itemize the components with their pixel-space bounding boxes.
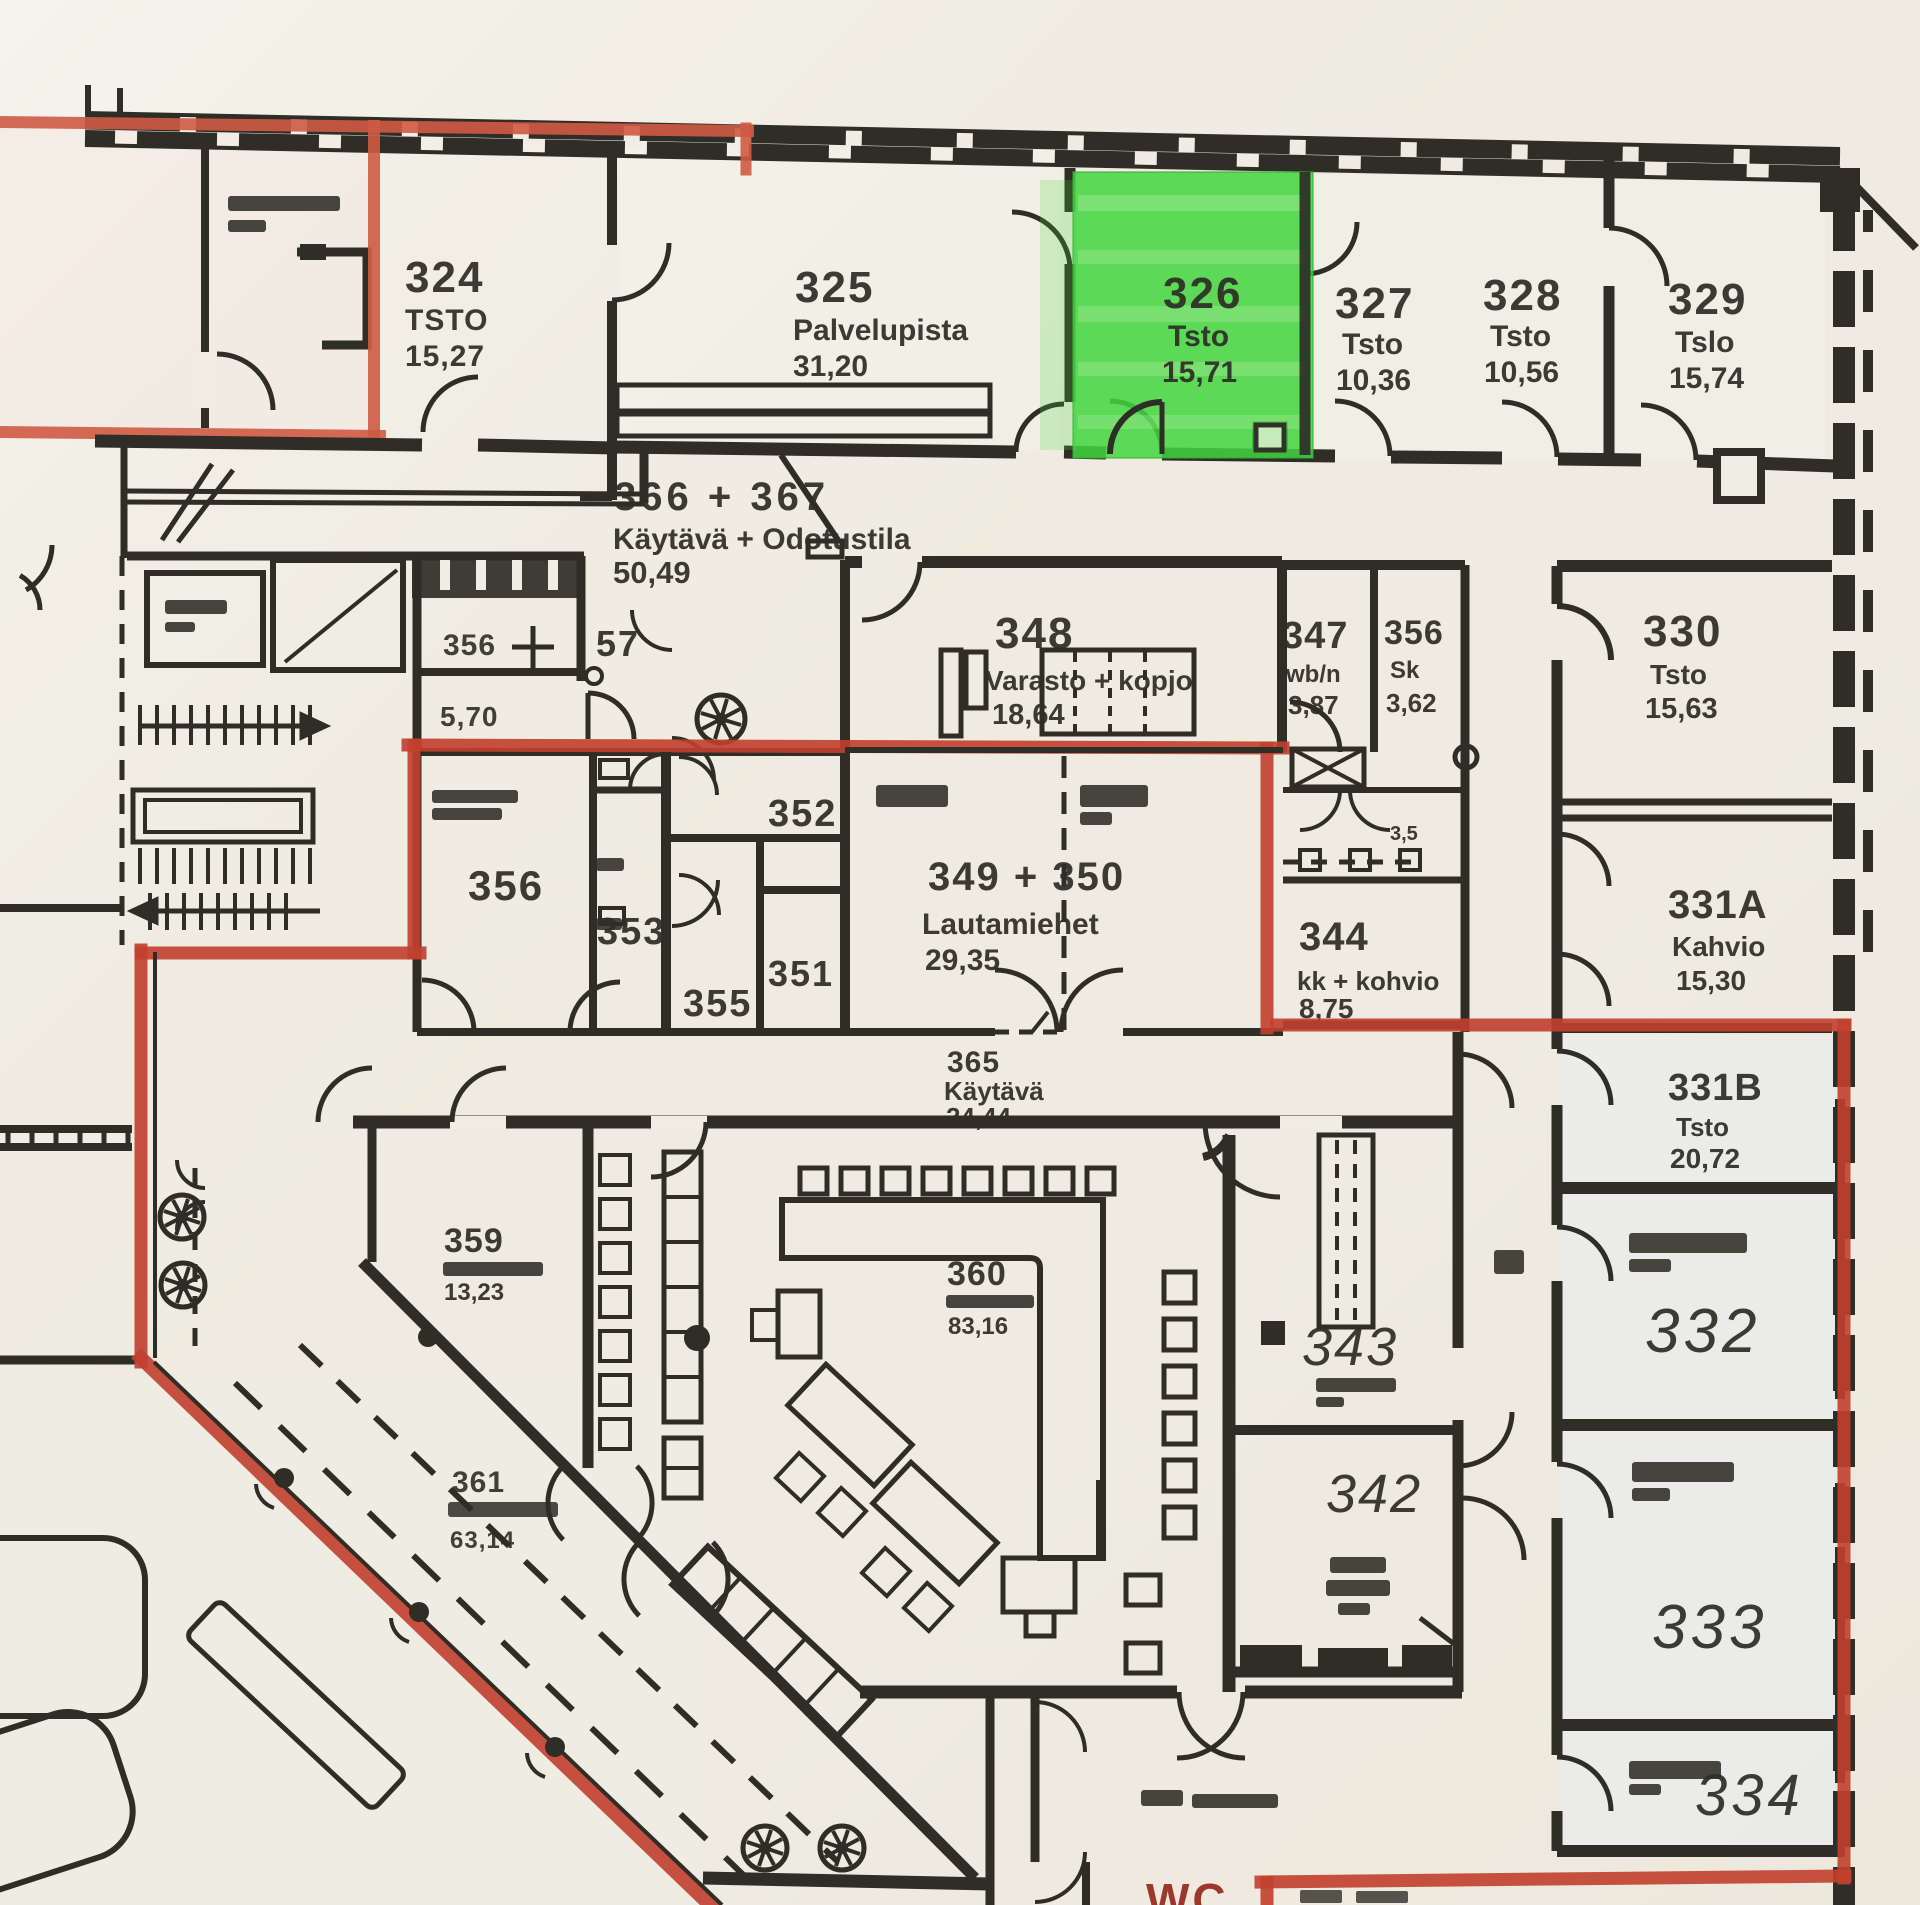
svg-text:3,62: 3,62 [1386, 688, 1437, 718]
svg-text:Kahvio: Kahvio [1672, 931, 1765, 962]
svg-text:15,30: 15,30 [1676, 965, 1746, 996]
svg-text:57: 57 [596, 623, 640, 664]
svg-text:10,56: 10,56 [1484, 356, 1559, 389]
svg-text:359: 359 [444, 1222, 504, 1260]
svg-text:327: 327 [1335, 279, 1414, 328]
svg-text:83,16: 83,16 [948, 1313, 1008, 1340]
svg-text:356: 356 [443, 629, 496, 662]
svg-text:13,23: 13,23 [444, 1279, 504, 1306]
svg-text:356: 356 [1384, 614, 1444, 652]
svg-text:330: 330 [1643, 607, 1722, 656]
svg-text:WC: WC [1146, 1874, 1229, 1905]
svg-text:334: 334 [1695, 1763, 1804, 1828]
svg-text:348: 348 [995, 609, 1074, 658]
svg-text:kk + kohvio: kk + kohvio [1297, 966, 1439, 996]
svg-text:342: 342 [1326, 1464, 1422, 1524]
svg-text:TSTO: TSTO [405, 304, 488, 337]
svg-text:343: 343 [1302, 1317, 1398, 1377]
svg-text:Tsto: Tsto [1490, 320, 1551, 353]
svg-text:353: 353 [597, 911, 666, 953]
svg-text:5,70: 5,70 [440, 701, 499, 732]
svg-text:361: 361 [452, 1466, 505, 1499]
svg-text:332: 332 [1645, 1297, 1760, 1366]
svg-text:326: 326 [1163, 269, 1242, 318]
svg-text:15,63: 15,63 [1645, 693, 1718, 725]
svg-text:Palvelupista: Palvelupista [793, 314, 968, 347]
svg-text:349 + 350: 349 + 350 [928, 855, 1125, 899]
svg-text:wb/n: wb/n [1285, 661, 1341, 688]
svg-text:Tsto: Tsto [1168, 320, 1229, 353]
svg-text:351: 351 [768, 953, 834, 994]
svg-text:328: 328 [1483, 271, 1562, 320]
svg-text:347: 347 [1282, 615, 1348, 657]
svg-text:10,36: 10,36 [1336, 364, 1411, 397]
svg-text:Varasto + kopjo: Varasto + kopjo [985, 665, 1193, 696]
svg-text:331B: 331B [1668, 1067, 1763, 1109]
svg-text:331A: 331A [1668, 883, 1768, 927]
svg-text:Tsto: Tsto [1676, 1112, 1729, 1142]
svg-text:29,35: 29,35 [925, 944, 1000, 977]
svg-text:18,64: 18,64 [992, 699, 1065, 731]
svg-text:3,5: 3,5 [1390, 823, 1418, 845]
svg-text:15,71: 15,71 [1162, 356, 1237, 389]
svg-text:50,49: 50,49 [613, 555, 691, 590]
svg-text:325: 325 [795, 263, 874, 312]
svg-text:324: 324 [405, 253, 484, 302]
svg-text:63,14: 63,14 [450, 1527, 515, 1554]
svg-text:356: 356 [468, 862, 544, 909]
svg-text:31,20: 31,20 [793, 350, 868, 383]
svg-text:329: 329 [1668, 275, 1747, 324]
svg-text:15,27: 15,27 [405, 340, 485, 373]
svg-text:333: 333 [1652, 1593, 1767, 1662]
svg-text:Tslo: Tslo [1675, 326, 1734, 359]
svg-text:Tsto: Tsto [1342, 328, 1403, 361]
svg-text:Käytävä + Odotustila: Käytävä + Odotustila [613, 523, 911, 556]
svg-text:352: 352 [768, 793, 837, 835]
svg-text:20,72: 20,72 [1670, 1143, 1740, 1174]
svg-text:355: 355 [683, 983, 752, 1025]
svg-text:15,74: 15,74 [1669, 362, 1744, 395]
svg-text:Tsto: Tsto [1650, 659, 1707, 690]
svg-text:Lautamiehet: Lautamiehet [922, 908, 1099, 941]
svg-text:Sk: Sk [1390, 657, 1420, 684]
svg-text:365: 365 [947, 1046, 1000, 1079]
svg-text:344: 344 [1299, 915, 1369, 959]
